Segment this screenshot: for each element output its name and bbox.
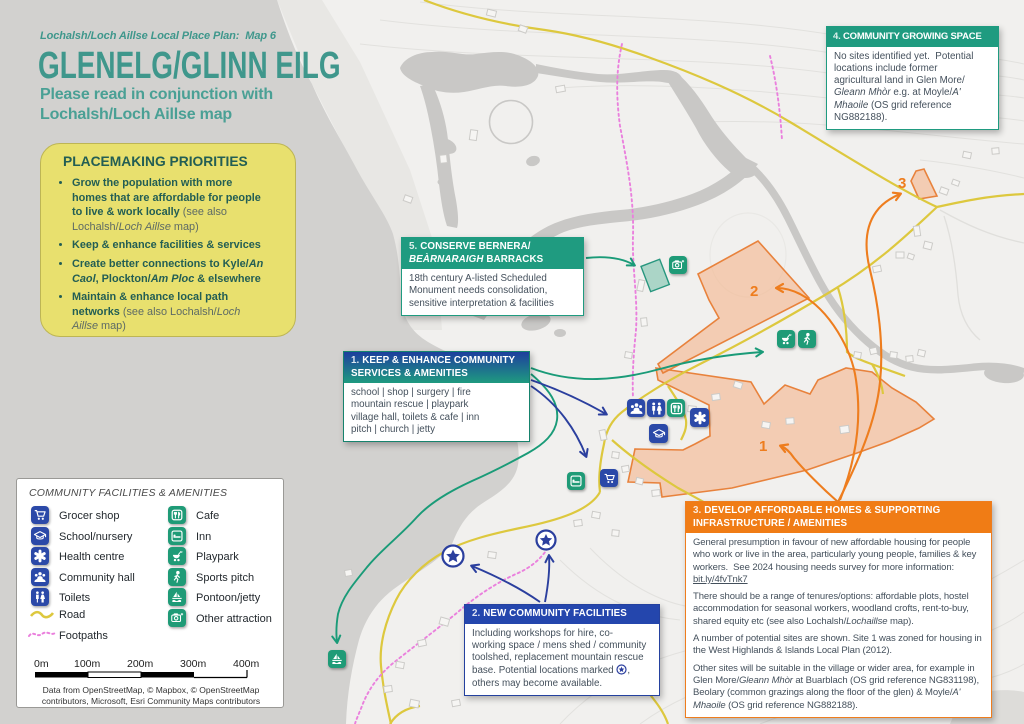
svg-text:400m: 400m [233,658,260,670]
svg-text:0m: 0m [34,658,49,670]
svg-text:200m: 200m [127,658,154,670]
svg-text:3: 3 [898,175,906,192]
svg-text:2: 2 [750,283,758,300]
svg-text:100m: 100m [74,658,101,670]
svg-text:300m: 300m [180,658,207,670]
svg-text:1: 1 [759,438,767,455]
